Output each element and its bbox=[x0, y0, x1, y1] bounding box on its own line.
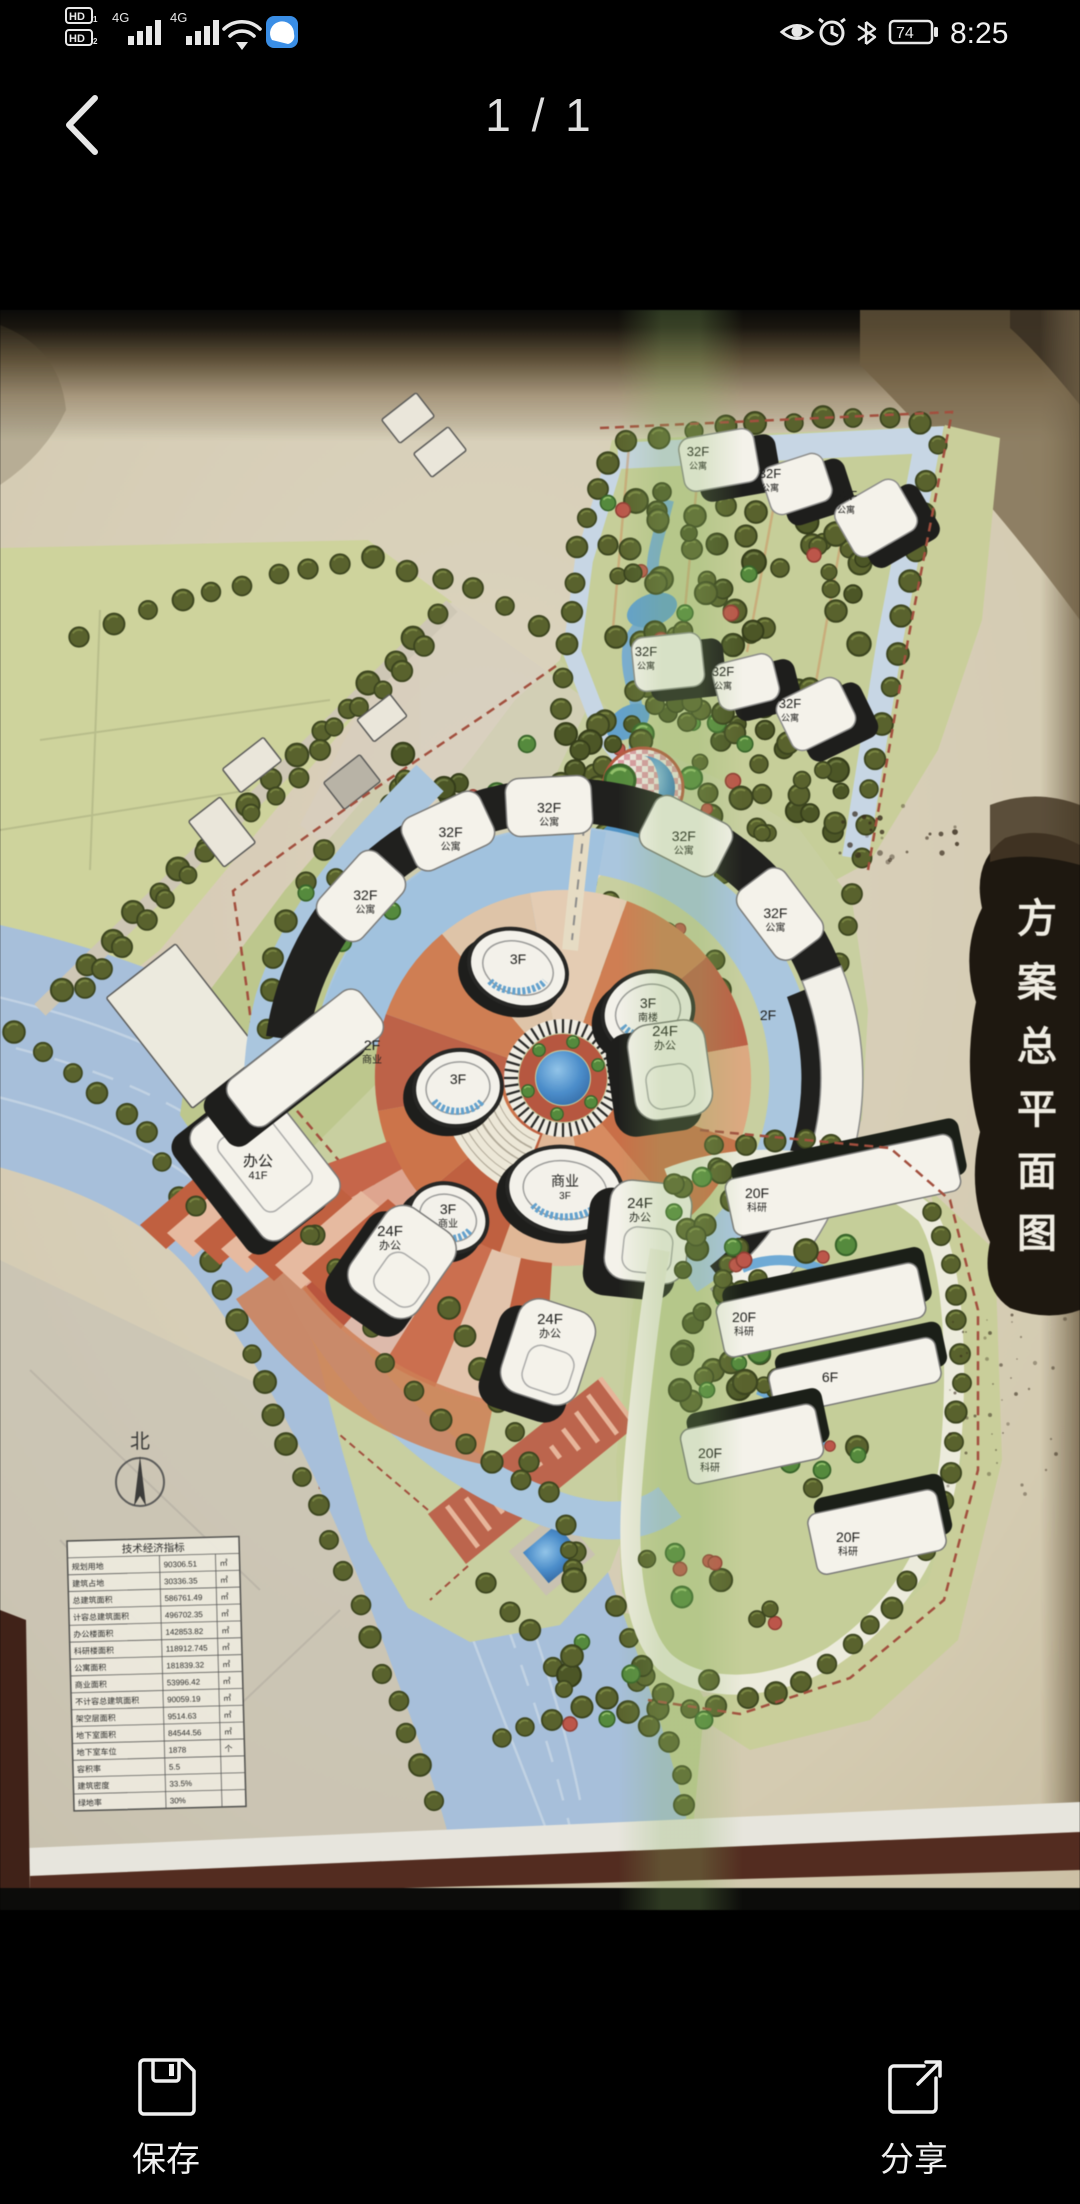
svg-text:HD: HD bbox=[69, 33, 85, 45]
svg-text:8:25: 8:25 bbox=[950, 17, 1008, 50]
svg-text:2: 2 bbox=[93, 37, 98, 46]
svg-text:4G: 4G bbox=[112, 10, 129, 25]
svg-text:74: 74 bbox=[896, 25, 914, 42]
svg-text:4G: 4G bbox=[170, 10, 187, 25]
svg-text:HD: HD bbox=[69, 11, 85, 23]
svg-text:1: 1 bbox=[93, 15, 98, 24]
